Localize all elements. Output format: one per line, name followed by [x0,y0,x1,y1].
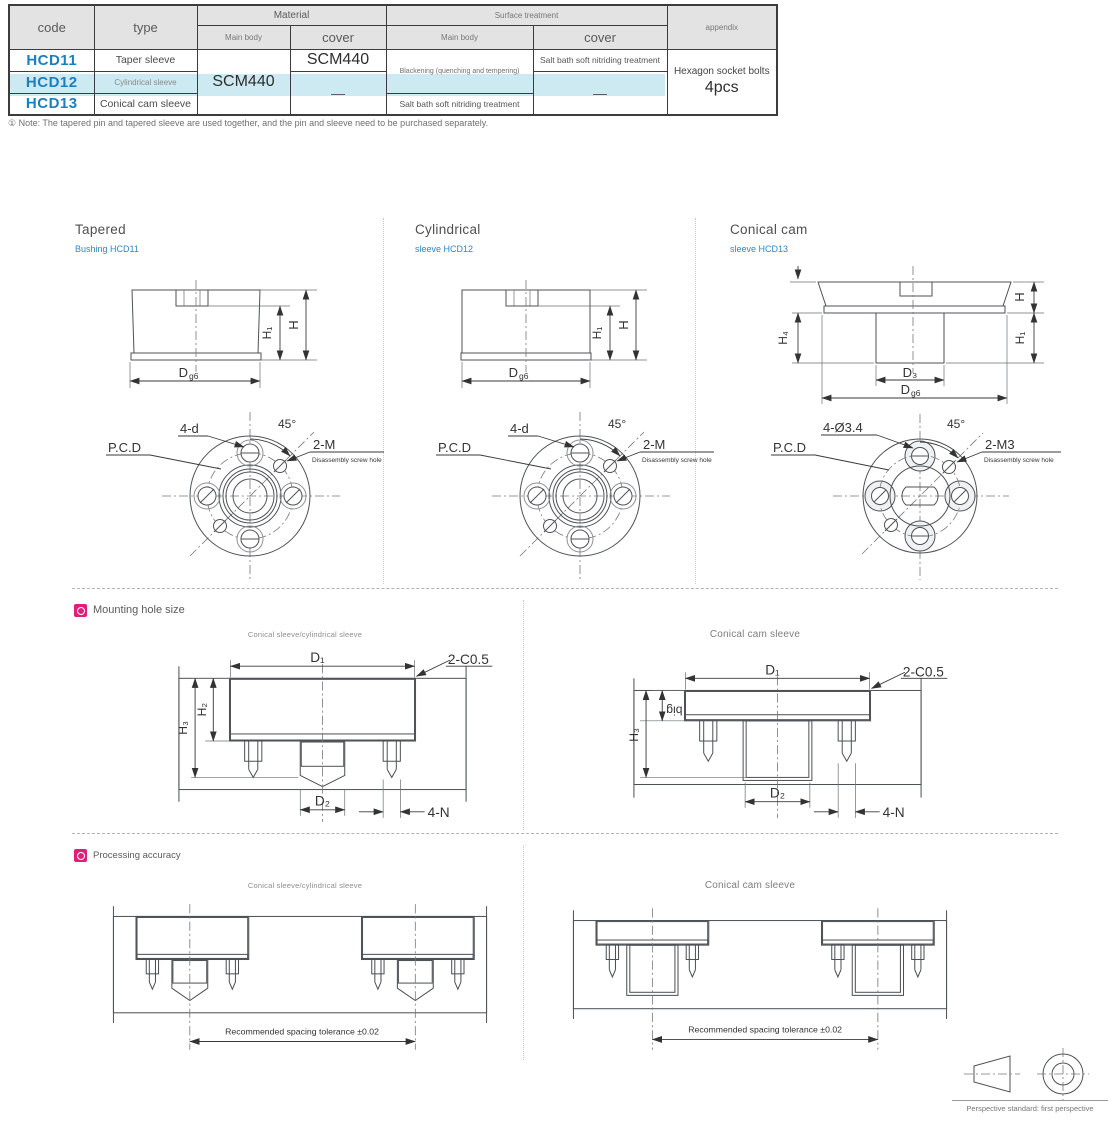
divider-vertical-3 [523,600,524,830]
dim-label-h: H [1012,292,1027,301]
dim-label-h1: H₁ [260,327,274,340]
dim-label-h2: H₂ [195,703,209,717]
dim-label-4n: 4-N [883,805,905,820]
section-subtitle-hcd11: Bushing HCD11 [75,244,139,254]
type-hcd11: Taper sleeve [94,49,197,71]
section-subtitle-hcd12: sleeve HCD12 [415,244,473,254]
dim-label-d: D [901,382,910,397]
dim-label-h1: H₁ [1013,332,1027,345]
subheader-surface-main-body: Main body [386,25,533,49]
hcd11-side-view-drawing: H₁ H D g6 [112,268,342,398]
dim-label-4dia: 4-Ø3.4 [823,420,863,435]
col-header-material: Material [197,5,386,25]
dim-label-chamfer: 2-C0.5 [448,652,489,667]
tolerance-label: Recommended spacing tolerance ±0.02 [225,1026,379,1036]
accuracy-label-right: Conical cam sleeve [590,880,910,891]
type-hcd13: Conical cam sleeve [94,93,197,115]
dim-label-h4: H₄ [776,331,790,345]
hcd13-side-view-drawing: H₄ H H₁ D₃ D g6 [772,258,1072,408]
first-angle-cone-icon [962,1050,1022,1098]
type-hcd12: Cylindrical sleeve [94,71,197,93]
dim-label-45: 45° [278,417,296,431]
subheader-surface-cover: cover [533,25,667,49]
material-main-body-value: SCM440 [197,49,290,115]
screw-note: Disassembly screw hole [642,457,712,464]
dim-label-pcd: P.C.D [438,440,471,455]
dim-label-d: D [179,365,188,380]
subheader-material-cover: cover [290,25,386,49]
hcd12-side-view-drawing: H₁ H D g6 [442,268,672,398]
screw-note: Disassembly screw hole [984,457,1054,464]
section-title-cylindrical: Cylindrical [415,222,481,237]
section-subtitle-hcd13: sleeve HCD13 [730,244,788,254]
datasheet-page: { "page": { "note": "① Note: The tapered… [0,0,1110,1121]
dim-label-chamfer: 2-C0.5 [903,664,944,679]
material-cover-rows23: — [290,71,386,115]
accuracy-left-drawing: Recommended spacing tolerance ±0.02 [95,898,505,1062]
dim-label-2m3: 2-M3 [985,437,1015,452]
tolerance-label: Recommended spacing tolerance ±0.02 [688,1024,842,1034]
dim-label-d2: D₂ [315,794,330,809]
dim-label-d1: D₁ [765,662,780,677]
dim-label-d1: D₁ [310,650,325,665]
mounting-label-left: Conical sleeve/cylindrical sleeve [150,630,460,639]
dim-label-pcd: P.C.D [773,440,806,455]
appendix-cell: Hexagon socket bolts 4pcs [667,49,777,115]
appendix-line1: Hexagon socket bolts [668,66,777,77]
first-angle-circles-icon [1035,1046,1091,1102]
col-header-code: code [9,5,94,49]
dim-label-g6: g6 [519,371,529,381]
accuracy-label-left: Conical sleeve/cylindrical sleeve [150,881,460,890]
screw-note: Disassembly screw hole [312,457,382,464]
dim-label-d2: D₂ [770,786,785,801]
surface-cover-row1: Salt bath soft nitriding treatment [533,49,667,71]
surface-main-rows12: Blackening (quenching and tempering) [386,49,533,93]
dim-label-h: H [616,320,631,329]
dim-label-2m: 2-M [643,437,665,452]
mounting-label-right: Conical cam sleeve [595,629,915,640]
divider-horizontal-1 [72,588,1058,589]
dim-label-4d: 4-d [510,421,529,436]
mounting-section-right-drawing: D₁ 2-C0.5 big H₃ D₂ 4-N [605,648,950,830]
dim-label-45: 45° [608,417,626,431]
dim-label-d: D [509,365,518,380]
subheader-material-main-body: Main body [197,25,290,49]
dim-label-h3: H₃ [176,721,190,735]
dim-label-h3: H₃ [627,728,641,742]
dim-label-2m: 2-M [313,437,335,452]
dim-label-4n: 4-N [428,805,450,820]
dim-label-g6: g6 [189,371,199,381]
surface-cover-rows23: — [533,71,667,115]
projection-standard-caption: Perspective standard: first perspective [952,1100,1108,1113]
dim-label-h1: H₁ [590,327,604,340]
col-header-type: type [94,5,197,49]
col-header-appendix: appendix [667,5,777,49]
hcd12-top-view-drawing: 45° 4-d P.C.D 2-M Disassembly screw hole [430,396,720,581]
code-hcd13: HCD13 [9,93,94,115]
footnote: ① Note: The tapered pin and tapered slee… [8,118,488,129]
divider-vertical-4 [523,845,524,1060]
section-title-tapered: Tapered [75,222,126,237]
section-title-conical-cam: Conical cam [730,222,808,237]
col-header-surface: Surface treatment [386,5,667,25]
dim-label-pcd: P.C.D [108,440,141,455]
dim-label-d3: D₃ [903,365,918,380]
hcd13-top-view-drawing: 45° 4-Ø3.4 P.C.D 2-M3 Disassembly screw … [765,396,1065,581]
accuracy-section-title: Processing accuracy [93,850,181,861]
appendix-line2: 4pcs [668,79,777,97]
surface-main-row3: Salt bath soft nitriding treatment [386,93,533,115]
accuracy-section-icon [74,849,87,862]
accuracy-right-drawing: Recommended spacing tolerance ±0.02 [555,898,965,1062]
divider-horizontal-2 [72,833,1058,834]
dim-label-4d: 4-d [180,421,199,436]
code-hcd12: HCD12 [9,71,94,93]
dim-label-big: big [666,704,682,718]
mounting-section-title: Mounting hole size [93,604,185,616]
hcd11-top-view-drawing: 45° 4-d P.C.D 2-M Disassembly screw hole [100,396,390,581]
spec-table: code type Material Surface treatment app… [8,4,776,116]
mounting-section-icon [74,604,87,617]
dim-label-45: 45° [947,417,965,431]
mounting-section-left-drawing: D₁ 2-C0.5 H₂ H₃ D₂ 4-N [150,648,495,830]
dim-label-h: H [286,320,301,329]
code-hcd11: HCD11 [9,49,94,71]
material-cover-row1: SCM440 [290,49,386,71]
